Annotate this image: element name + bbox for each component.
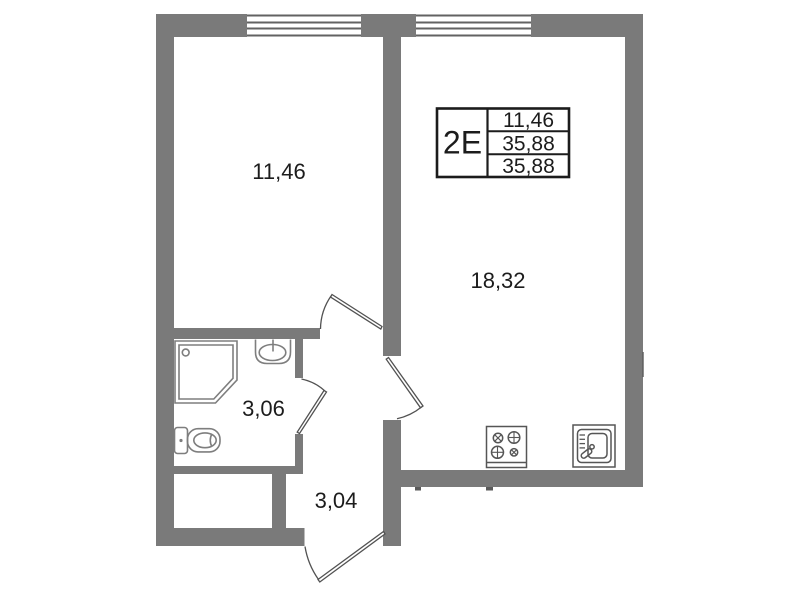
svg-text:2Е: 2Е	[443, 125, 482, 161]
svg-text:35,88: 35,88	[502, 133, 555, 156]
svg-text:3,06: 3,06	[242, 396, 285, 421]
svg-text:35,88: 35,88	[502, 155, 555, 178]
svg-text:18,32: 18,32	[470, 268, 525, 293]
svg-text:3,04: 3,04	[315, 488, 358, 513]
svg-text:11,46: 11,46	[503, 109, 554, 132]
svg-text:11,46: 11,46	[252, 159, 305, 184]
